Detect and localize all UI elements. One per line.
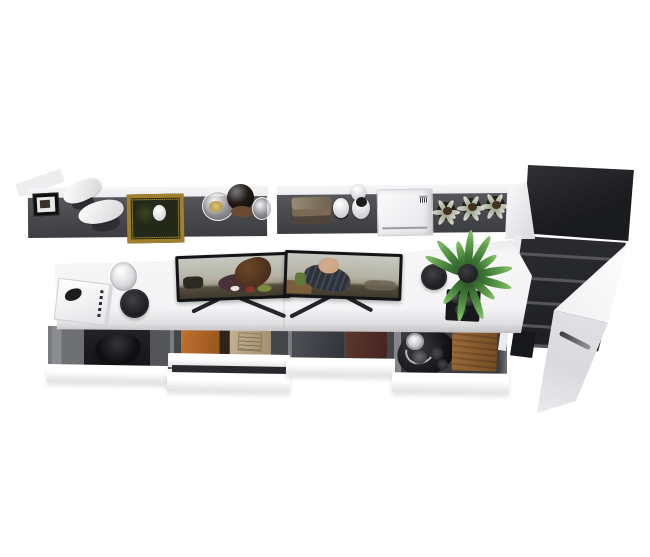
photo-picture bbox=[40, 200, 50, 209]
succulent-center bbox=[468, 203, 477, 211]
drawer-open-headphones bbox=[394, 327, 507, 377]
monitor-left bbox=[175, 252, 291, 302]
headphone-earcup bbox=[406, 333, 424, 350]
magazine bbox=[54, 278, 114, 326]
drawer-front bbox=[167, 372, 290, 393]
tray-cup bbox=[153, 205, 166, 221]
binder-label bbox=[238, 332, 263, 351]
fern-pot bbox=[458, 264, 478, 283]
egg-ornament bbox=[333, 198, 349, 218]
screen-table-items bbox=[183, 277, 203, 289]
wooden-box bbox=[452, 332, 498, 372]
printer-label bbox=[420, 196, 428, 203]
framed-photo bbox=[32, 192, 59, 216]
magazine-title-text bbox=[97, 290, 103, 317]
bowl-snack bbox=[209, 201, 223, 212]
speaker-left bbox=[120, 289, 149, 318]
drawer-open-controller bbox=[48, 326, 174, 369]
succulent-pot bbox=[483, 190, 509, 220]
drawer-front bbox=[47, 364, 168, 384]
headphone-earcup bbox=[412, 350, 427, 364]
succulent-pot bbox=[434, 196, 460, 226]
vase-saucer bbox=[231, 206, 253, 217]
succulent-center bbox=[492, 201, 501, 209]
screen-man-head bbox=[318, 257, 339, 273]
screen-food bbox=[257, 284, 271, 291]
dual-monitors bbox=[170, 246, 402, 324]
monitor-right-screen bbox=[286, 253, 399, 298]
wardrobe-top-panel bbox=[523, 163, 635, 241]
glass-cup-shelf bbox=[252, 197, 272, 220]
glass-cup-desk bbox=[109, 261, 138, 292]
egg-ornament-cap bbox=[356, 197, 367, 207]
fern-plant bbox=[418, 230, 520, 310]
monitor-right bbox=[283, 250, 403, 301]
wood-grain bbox=[452, 332, 498, 372]
screen-bottle bbox=[294, 272, 306, 285]
wardrobe-door-open bbox=[518, 234, 642, 420]
scene-desk-top-view bbox=[0, 0, 650, 557]
tray-knob bbox=[437, 359, 448, 370]
ornate-tray bbox=[127, 194, 185, 244]
succulent-center bbox=[443, 207, 452, 215]
printer-slot bbox=[382, 227, 427, 230]
gray-folder bbox=[293, 329, 344, 359]
screen-food bbox=[245, 287, 254, 293]
magazine-bird-graphic bbox=[64, 288, 82, 301]
drawer-front bbox=[392, 372, 509, 394]
book-stack-top bbox=[292, 196, 332, 209]
drawer-front bbox=[286, 357, 395, 377]
monitor-left-screen bbox=[178, 255, 287, 299]
wardrobe-door-lower-face bbox=[518, 234, 642, 420]
book-stack bbox=[291, 196, 333, 224]
screen-table-items bbox=[365, 280, 396, 292]
